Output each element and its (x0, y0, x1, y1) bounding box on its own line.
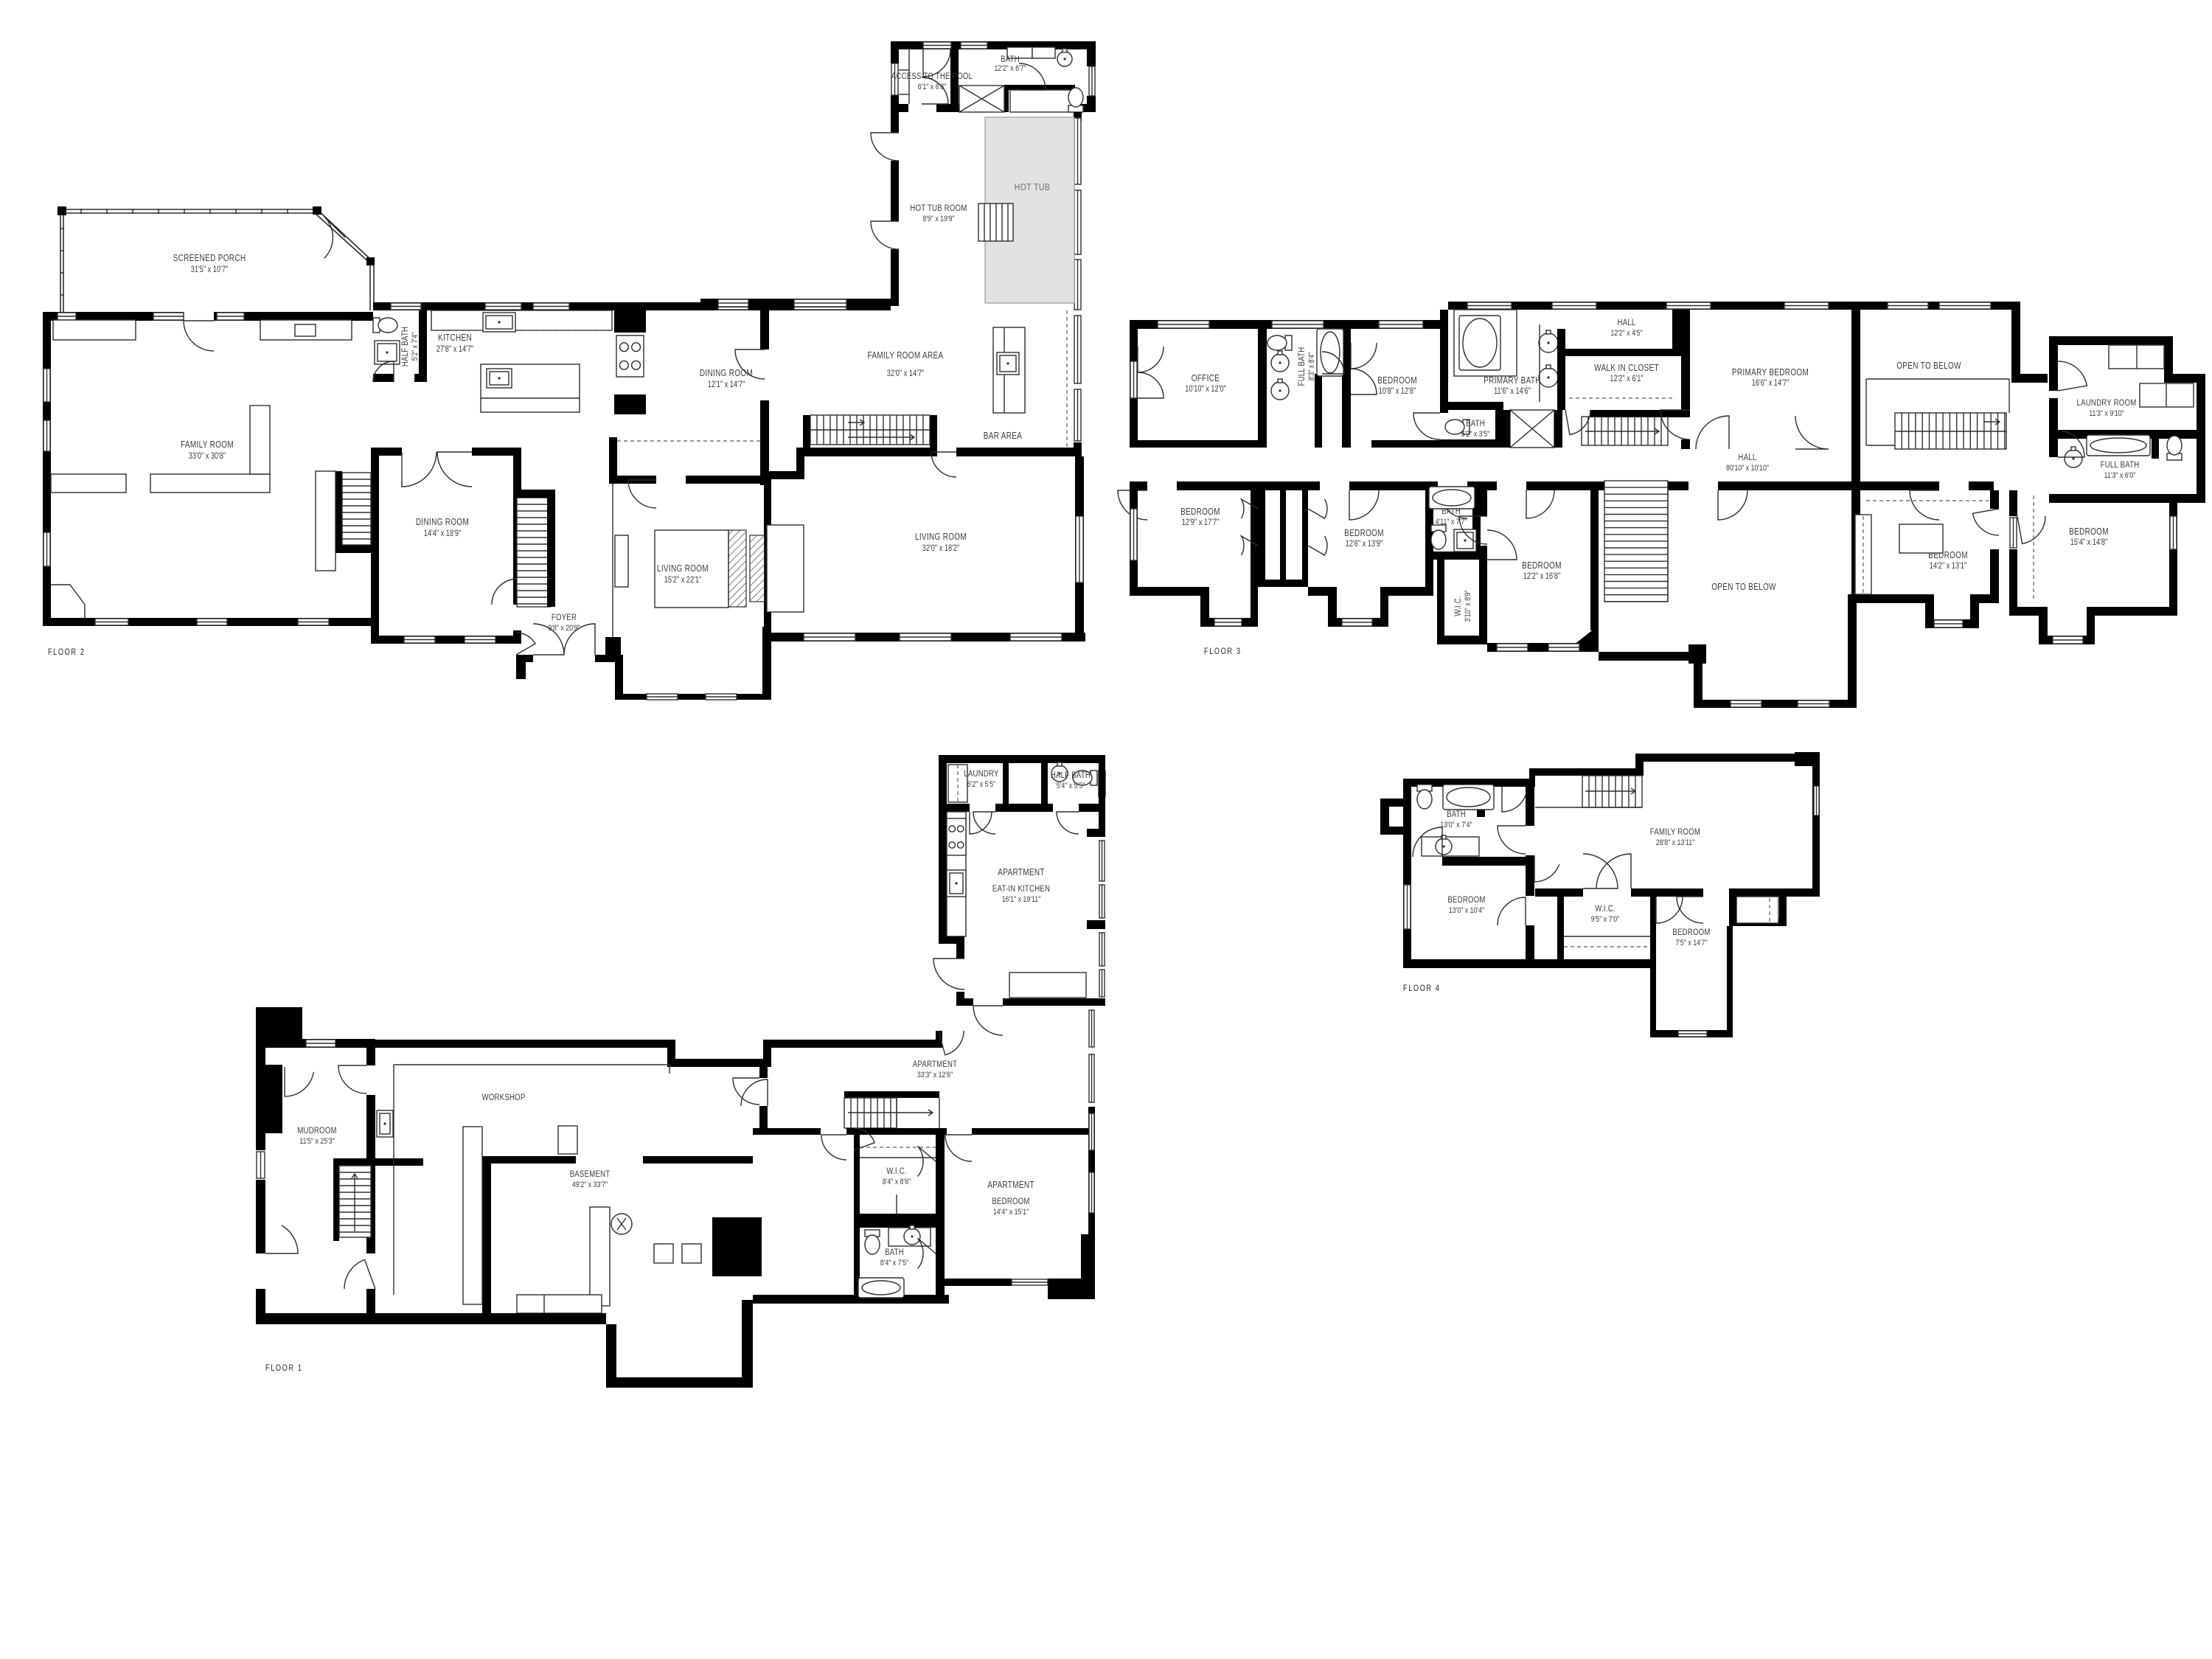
svg-text:DINING ROOM: DINING ROOM (416, 518, 469, 527)
svg-text:80'10" x 10'10": 80'10" x 10'10" (1726, 464, 1769, 473)
svg-text:28'8" x 13'11": 28'8" x 13'11" (1656, 838, 1695, 847)
svg-text:ACCESS TO THE POOL: ACCESS TO THE POOL (891, 72, 973, 81)
svg-text:11'5" x 25'3": 11'5" x 25'3" (299, 1137, 335, 1146)
svg-text:WALK IN CLOSET: WALK IN CLOSET (1594, 364, 1659, 373)
svg-text:33'3" x 12'6": 33'3" x 12'6" (917, 1071, 953, 1079)
svg-text:BEDROOM: BEDROOM (2069, 527, 2109, 537)
svg-text:OFFICE: OFFICE (1192, 374, 1220, 383)
svg-text:FAMILY ROOM: FAMILY ROOM (1650, 827, 1700, 837)
svg-text:FLOOR 4: FLOOR 4 (1403, 984, 1441, 993)
svg-text:BATH: BATH (1001, 55, 1020, 64)
svg-text:HOT TUB ROOM: HOT TUB ROOM (910, 204, 967, 213)
svg-text:FAMILY ROOM AREA: FAMILY ROOM AREA (868, 351, 944, 361)
svg-text:32'0" x 14'7": 32'0" x 14'7" (887, 369, 925, 378)
svg-text:BEDROOM: BEDROOM (992, 1197, 1029, 1206)
svg-text:W.I.C.: W.I.C. (1595, 904, 1615, 914)
svg-text:W.I.C.: W.I.C. (1453, 596, 1463, 616)
svg-text:14'2" x 13'1": 14'2" x 13'1" (1930, 562, 1967, 571)
svg-text:LAUNDRY: LAUNDRY (964, 769, 998, 779)
svg-text:SCREENED PORCH: SCREENED PORCH (173, 254, 246, 263)
svg-text:LIVING ROOM: LIVING ROOM (915, 532, 967, 542)
svg-text:WORKSHOP: WORKSHOP (482, 1093, 526, 1102)
svg-text:BEDROOM: BEDROOM (1377, 376, 1417, 386)
svg-text:EAT-IN KITCHEN: EAT-IN KITCHEN (992, 884, 1050, 894)
svg-text:8'4" x 7'5": 8'4" x 7'5" (880, 1259, 909, 1267)
svg-text:BEDROOM: BEDROOM (1522, 561, 1562, 571)
svg-text:HOT TUB: HOT TUB (1015, 182, 1051, 192)
svg-text:12'2" x 6'7": 12'2" x 6'7" (994, 64, 1026, 73)
svg-text:BEDROOM: BEDROOM (1344, 529, 1384, 538)
svg-text:HALF BATH: HALF BATH (1051, 771, 1091, 780)
svg-text:11'3" x 6'0": 11'3" x 6'0" (2104, 471, 2136, 480)
svg-text:FAMILY ROOM: FAMILY ROOM (181, 440, 234, 450)
svg-text:27'8" x 14'7": 27'8" x 14'7" (437, 345, 474, 354)
svg-text:BASEMENT: BASEMENT (570, 1169, 611, 1179)
svg-text:15'4" x 14'8": 15'4" x 14'8" (2070, 538, 2108, 547)
svg-text:33'0" x 30'8": 33'0" x 30'8" (189, 452, 226, 461)
svg-text:14'4" x 15'1": 14'4" x 15'1" (993, 1208, 1029, 1217)
svg-text:HALL: HALL (1739, 453, 1757, 462)
svg-text:PRIMARY BATH: PRIMARY BATH (1484, 376, 1541, 386)
svg-text:31'5" x 10'7": 31'5" x 10'7" (191, 265, 229, 274)
svg-text:HALL: HALL (1618, 318, 1636, 327)
svg-text:16'1" x 19'11": 16'1" x 19'11" (1002, 895, 1041, 904)
svg-text:7'5" x 14'7": 7'5" x 14'7" (1675, 939, 1708, 947)
svg-text:9'5" x 7'0": 9'5" x 7'0" (1591, 915, 1620, 924)
svg-text:W.I.C.: W.I.C. (886, 1166, 907, 1176)
svg-text:LAUNDRY ROOM: LAUNDRY ROOM (2077, 398, 2137, 408)
svg-text:HALF BATH: HALF BATH (400, 327, 410, 366)
svg-text:12'2" x 4'5": 12'2" x 4'5" (1610, 329, 1643, 338)
svg-text:OPEN TO BELOW: OPEN TO BELOW (1896, 361, 1961, 371)
svg-text:FLOOR 1: FLOOR 1 (265, 1364, 303, 1373)
svg-text:6'2" x 5'5": 6'2" x 5'5" (967, 780, 996, 789)
svg-text:12'2" x 6'1": 12'2" x 6'1" (1610, 375, 1644, 383)
svg-text:6'1" x 6'8": 6'1" x 6'8" (918, 83, 947, 91)
svg-text:12'6" x 13'9": 12'6" x 13'9" (1346, 540, 1383, 549)
svg-text:BATH: BATH (885, 1248, 904, 1257)
svg-text:APARTMENT: APARTMENT (987, 1180, 1034, 1190)
svg-text:BEDROOM: BEDROOM (1672, 928, 1710, 937)
svg-text:KITCHEN: KITCHEN (438, 333, 472, 343)
svg-text:8'4" x 8'6": 8'4" x 8'6" (883, 1178, 911, 1186)
svg-text:APARTMENT: APARTMENT (913, 1060, 958, 1069)
svg-text:13'0" x 10'4": 13'0" x 10'4" (1449, 906, 1485, 915)
svg-text:15'2" x 22'1": 15'2" x 22'1" (664, 576, 702, 585)
svg-text:10'10" x 12'0": 10'10" x 12'0" (1185, 385, 1226, 394)
svg-text:49'2" x 33'7": 49'2" x 33'7" (572, 1180, 608, 1189)
svg-text:5'2" x 7'4": 5'2" x 7'4" (411, 332, 420, 361)
svg-text:BAR AREA: BAR AREA (984, 431, 1023, 441)
svg-text:11'3" x 9'10": 11'3" x 9'10" (2089, 409, 2124, 418)
svg-text:16'6" x 14'7": 16'6" x 14'7" (1752, 379, 1790, 388)
svg-text:DINING ROOM: DINING ROOM (700, 369, 753, 378)
svg-text:BEDROOM: BEDROOM (1180, 507, 1220, 517)
svg-text:BEDROOM: BEDROOM (1447, 895, 1485, 905)
svg-text:10'8" x 12'8": 10'8" x 12'8" (1379, 387, 1416, 396)
svg-text:5'2" x 3'5": 5'2" x 3'5" (1461, 430, 1490, 439)
svg-text:5'4" x 5'5": 5'4" x 5'5" (1057, 782, 1085, 790)
svg-text:FULL BATH: FULL BATH (1297, 347, 1307, 386)
svg-text:FLOOR 3: FLOOR 3 (1204, 647, 1242, 656)
svg-text:LIVING ROOM: LIVING ROOM (657, 564, 709, 574)
svg-text:12'2" x 16'8": 12'2" x 16'8" (1523, 572, 1561, 581)
svg-text:3'10" x 8'9": 3'10" x 8'9" (1464, 590, 1472, 622)
svg-text:12'9" x 17'7": 12'9" x 17'7" (1182, 518, 1220, 527)
svg-text:FULL BATH: FULL BATH (2101, 460, 2140, 470)
svg-text:FLOOR 2: FLOOR 2 (48, 648, 86, 657)
svg-text:BATH: BATH (1447, 810, 1466, 819)
svg-text:14'4" x 18'9": 14'4" x 18'9" (424, 529, 462, 538)
svg-text:8'9" x 19'9": 8'9" x 19'9" (922, 215, 955, 223)
svg-text:MUDROOM: MUDROOM (297, 1126, 336, 1135)
svg-text:OPEN TO BELOW: OPEN TO BELOW (1711, 582, 1776, 592)
svg-text:12'1" x 14'7": 12'1" x 14'7" (708, 380, 745, 389)
svg-text:PRIMARY BEDROOM: PRIMARY BEDROOM (1732, 368, 1809, 378)
svg-text:8'3" x 8'4": 8'3" x 8'4" (1307, 352, 1316, 380)
svg-text:13'0" x 7'4": 13'0" x 7'4" (1440, 821, 1472, 829)
svg-text:FOYER: FOYER (552, 613, 577, 622)
svg-text:32'0" x 18'2": 32'0" x 18'2" (922, 544, 960, 553)
svg-text:11'6" x 14'6": 11'6" x 14'6" (1494, 387, 1531, 396)
svg-text:APARTMENT: APARTMENT (998, 868, 1045, 877)
svg-text:BATH: BATH (1466, 419, 1485, 428)
